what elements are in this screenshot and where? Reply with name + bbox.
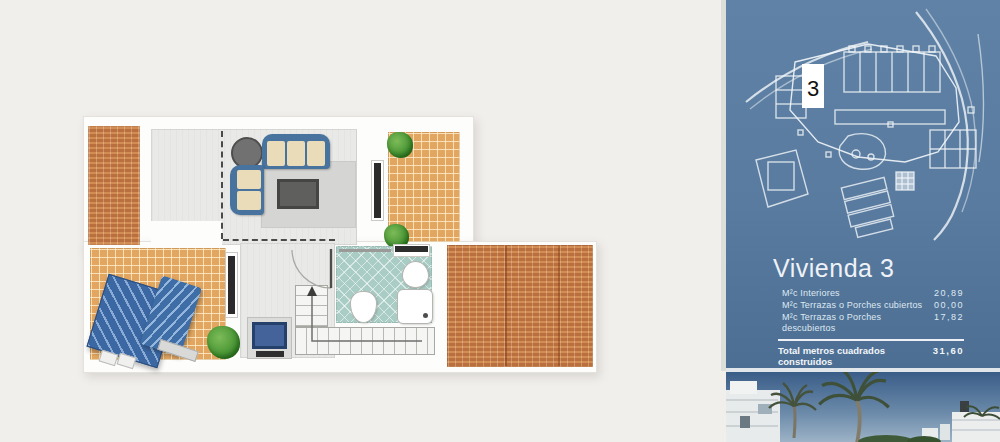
wall-patch <box>151 221 222 245</box>
sofa-two-seat <box>230 165 264 215</box>
terrace-bush <box>207 326 240 359</box>
shower-tray <box>397 289 433 324</box>
total-label: Total metros cuadrados construidos <box>778 345 933 367</box>
sink <box>402 261 429 288</box>
shower-drain <box>423 313 428 318</box>
total-row: Total metros cuadrados construidos 31,60 <box>778 345 964 367</box>
spec-label: M²c Terrazas o Porches cubiertos <box>782 300 922 311</box>
spec-label: M²c Interiores <box>782 288 840 299</box>
sofa-cushion <box>237 191 261 210</box>
spec-row-porches-cubiertos: M²c Terrazas o Porches cubiertos 00,00 <box>782 300 964 311</box>
roof-terrace-bottom-right <box>447 245 593 367</box>
terrace-plant <box>387 132 413 158</box>
roof-ridge <box>505 246 507 366</box>
unit-title: Vivienda 3 <box>773 254 894 283</box>
sofa-three-seat <box>262 134 330 169</box>
roof-terrace-top-left <box>88 126 140 245</box>
towel-rail <box>339 249 391 252</box>
door-swing <box>290 246 336 292</box>
total-value: 31,60 <box>933 345 964 367</box>
coffee-table <box>277 179 319 209</box>
info-panel: 3 Vivienda 3 M²c Interiores 20,89 M²c Te… <box>726 0 1000 371</box>
spec-row-porches-descubiertos: M²c Terrazas o Porches descubiertos 17,8… <box>782 312 964 334</box>
tv-screen <box>252 322 287 349</box>
window-glass <box>374 163 381 218</box>
area-spec-table: M²c Interiores 20,89 M²c Terrazas o Porc… <box>782 288 964 334</box>
brochure-page: 3 Vivienda 3 M²c Interiores 20,89 M²c Te… <box>0 0 1000 442</box>
vanity-counter <box>395 246 428 252</box>
spec-value: 00,00 <box>934 300 964 311</box>
sofa-cushion <box>237 170 261 189</box>
sofa-cushion <box>267 141 285 166</box>
site-plan: 3 <box>740 4 986 250</box>
total-separator-line <box>778 339 964 341</box>
spec-value: 20,89 <box>934 288 964 299</box>
dashed-boundary-horizontal <box>223 239 335 241</box>
site-plan-unit-marker: 3 <box>807 76 819 101</box>
roof-ridge <box>558 246 560 366</box>
spec-label: M²c Terrazas o Porches descubiertos <box>782 312 934 334</box>
window-glass <box>228 256 235 314</box>
spec-row-interiores: M²c Interiores 20,89 <box>782 288 964 299</box>
tv-soundbar <box>256 351 284 357</box>
dashed-boundary-vertical <box>221 131 223 239</box>
sofa-cushion <box>287 141 305 166</box>
spec-value: 17,82 <box>934 312 964 334</box>
sofa-cushion <box>307 141 325 166</box>
exterior-render-photo <box>726 372 1000 442</box>
